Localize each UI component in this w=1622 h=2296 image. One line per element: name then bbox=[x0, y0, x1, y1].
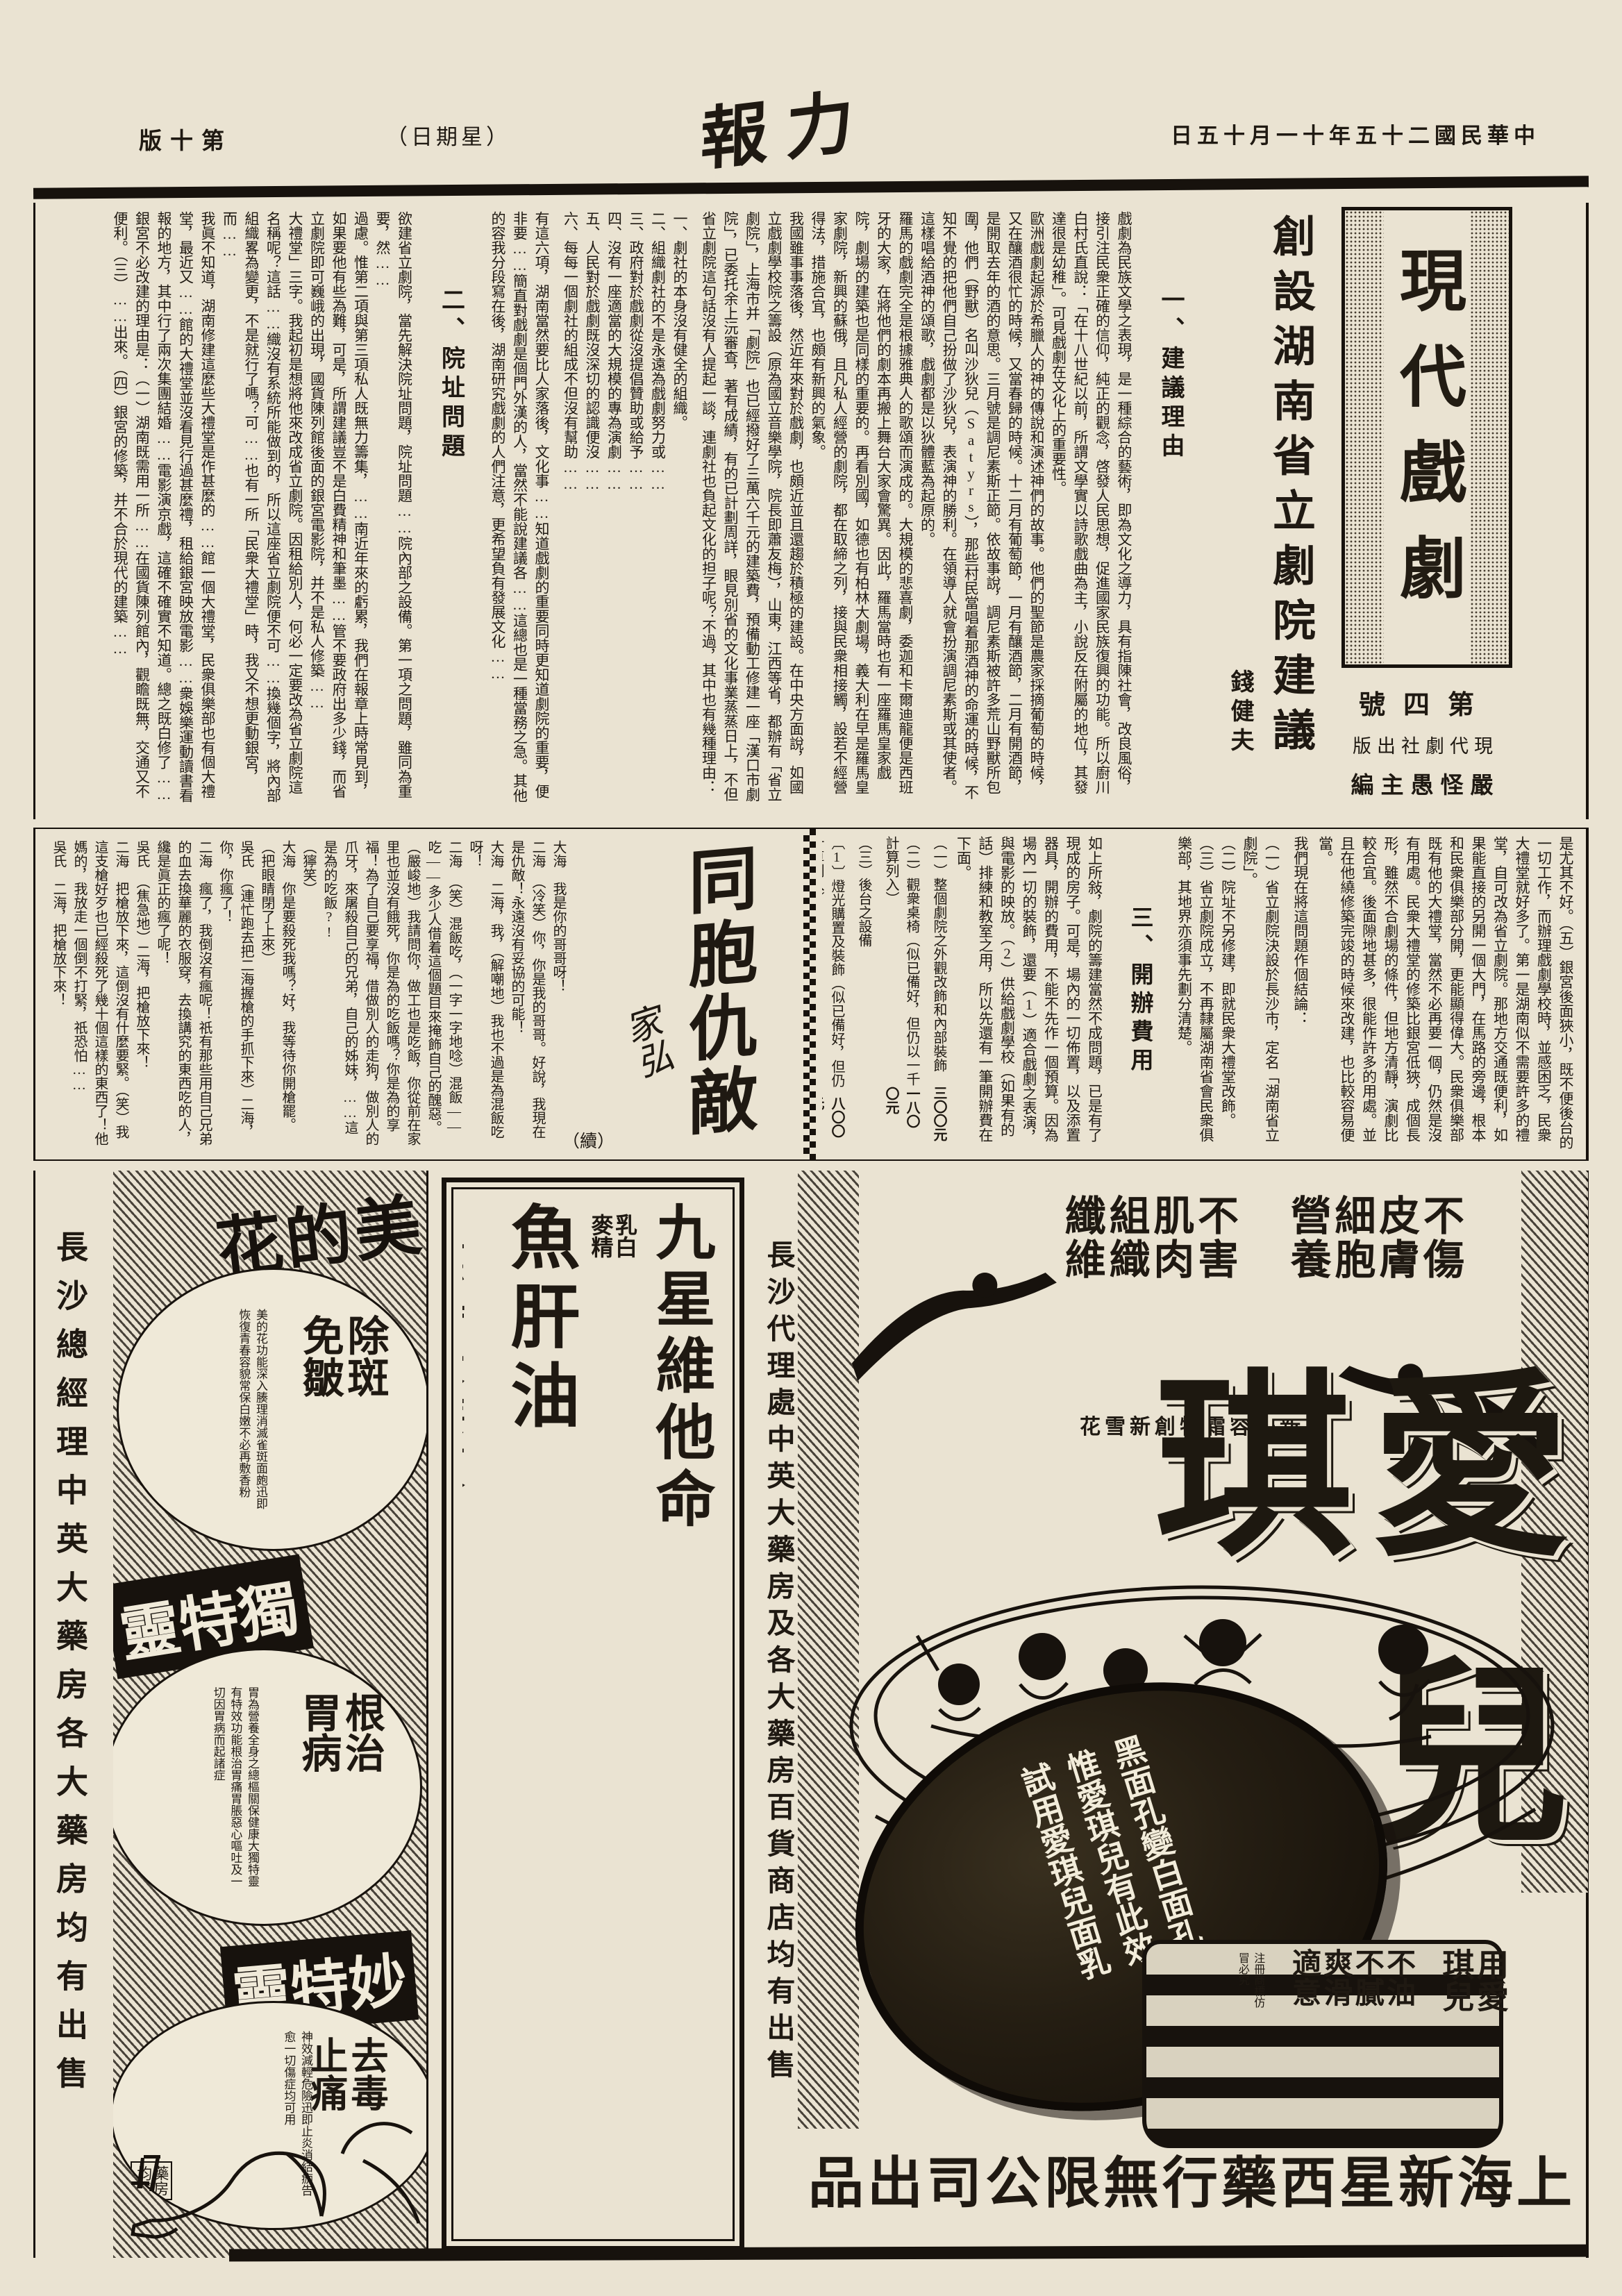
section1-closing: 有這六項，湖南當然要比人家落後，文化事……知道戲劇的重要同時更知道劇院的重要，便… bbox=[487, 211, 553, 808]
masthead-rule bbox=[33, 176, 1589, 199]
supplement-logo: 現代戲劇 bbox=[1379, 246, 1475, 629]
meidihua-artwork: 美的花 除斑免皺 美的花功能深入腠理消滅雀斑面皰迅即恢復青春容貌常保白嫩不必再敷… bbox=[113, 1171, 426, 2258]
budget-list: （一）整個劇院之外觀改飾和內部裝飾 三〇〇元 （二）觀衆桌椅（似已備好，但仍以一… bbox=[822, 836, 949, 1153]
section2-heading: 二、院址問題 bbox=[433, 287, 469, 808]
aiqier-small-print: 注冊商標仿冒必究 bbox=[1234, 1952, 1265, 2015]
section1-reasons: 一、劇社的本身沒有健全的組織。 二、組織劇社的不是永遠為戲劇努力或…… 三、政府… bbox=[559, 211, 690, 808]
article-author: 錢健夫 bbox=[1223, 669, 1257, 801]
ad-jiuxing: 九星維他命 乳白麥精 魚肝油 應時大廉價 照碼八折買二送一 各大藥房同時舉行 長… bbox=[435, 1171, 751, 2258]
newspaper-page: 中華民國二十五年十一月十五日 力報 （星期日） 第十版 現代戲劇 第四號 現代劇… bbox=[0, 0, 1622, 2296]
aiqier-company-footer: 上海新星西藥行無限公司出品 bbox=[777, 2138, 1575, 2219]
top-article-section: 現代戲劇 第四號 現代劇社出版 嚴怪愚主編 創設湖南省立劇院建議 錢健夫 一、建… bbox=[33, 203, 1589, 819]
fiction-title: 同胞仇敵 bbox=[667, 840, 767, 1157]
budget-item: （二）觀衆桌椅（似已備好，但仍以一千計算列入） 一八〇〇元 bbox=[880, 836, 922, 1141]
middle-band: 是尤其不好。（五）銀宮後面狹小，既不便後台的一切工作，而辦理戲劇學校時，並感困乏… bbox=[33, 828, 1589, 1161]
budget-item-label: 〔1〕燈光購置及裝飾（似已備好，但仍計算列入） bbox=[822, 836, 847, 1096]
budget-item-amount: 一八〇〇元 bbox=[880, 1087, 922, 1141]
jiuxing-product-column: 九星維他命 乳白麥精 魚肝油 bbox=[488, 1201, 724, 2227]
section1-heading: 一、建議理由 bbox=[1153, 287, 1188, 808]
aiqier-usage-claims: 不油不膩爽滑適意 bbox=[1289, 1948, 1414, 2015]
jiuxing-product-name2: 魚肝油 bbox=[488, 1201, 589, 2227]
aiqier-usage: 用愛琪兒 bbox=[1439, 1948, 1507, 2020]
budget-item: （一）整個劇院之外觀改飾和內部裝飾 三〇〇元 bbox=[928, 836, 949, 1141]
dutelin-detail: 胃為營養全身之總樞關保健康大獨特靈有特效功能根治胃痛胃脹惡心嘔吐及一切因胃病而起… bbox=[122, 1686, 260, 1895]
budget-item-label: （三）後台之設備 bbox=[853, 836, 874, 947]
jiuxing-promo: 應時大廉價 bbox=[462, 1240, 470, 2227]
supplement-editor: 嚴怪愚主編 bbox=[1311, 766, 1540, 800]
section2-continuation: 是尤其不好。（五）銀宮後面狹小，既不便後台的一切工作，而辦理戲劇學校時，並感困乏… bbox=[1314, 836, 1576, 1153]
aiqier-agent-line: 長沙代理處中英大藥房及各大藥房百貨商店均有出售 bbox=[758, 1240, 799, 2163]
reclining-woman-foot-nails-illustration bbox=[113, 2077, 426, 2258]
dutelin-claim: 根治胃病 bbox=[296, 1692, 383, 1784]
article-headline: 創設湖南省立劇院建議 bbox=[1258, 214, 1321, 803]
budget-section: 是尤其不好。（五）銀宮後面狹小，既不便後台的一切工作，而辦理戲劇學校時，並感困乏… bbox=[822, 836, 1576, 1153]
checkered-divider bbox=[803, 829, 816, 1159]
masthead-date: 中華民國二十五年十一月十五日 bbox=[1171, 118, 1540, 149]
advertisement-band: 長沙總經理中英大藥房各大藥房均有出售 美的花 除斑免皺 美的花功能深入腠理消滅雀… bbox=[33, 1171, 1589, 2258]
fiction-text: 大海 我是你的哥哥呀！ 二海 （冷笑）你，你是我的哥哥。好說，我現在是仇敵！永遠… bbox=[44, 840, 569, 1146]
meidihua-circle: 除斑免皺 美的花功能深入腠理消滅雀斑面皰迅即恢復青春容貌常保白嫩不必再敷香粉 bbox=[117, 1268, 426, 1551]
masthead-title: 力報 bbox=[700, 64, 873, 185]
conclusion-items: （一）省立劇院決設於長沙市，定名「湖南省立劇院」。 （二）院址不另修建，即就民衆… bbox=[1173, 836, 1282, 1153]
budget-item: 〔1〕燈光購置及裝飾（似已備好，但仍計算列入） 八〇〇元 bbox=[822, 836, 847, 1141]
ad-aiqier: 長沙代理處中英大藥房及各大藥房百貨商店均有出售 不傷皮膚細胞營養 不害肌肉組織纖… bbox=[753, 1171, 1588, 2258]
budget-item-amount: 八〇〇元 bbox=[822, 1096, 847, 1141]
section2-paragraphs: 欲建省立劇院，當先解決院址問題，院址問題……院內部之設備。第一項之問題，雖同為重… bbox=[109, 211, 415, 808]
aiqier-slogan-2: 不害肌肉組織纖維 bbox=[1059, 1194, 1236, 1287]
section1-paragraphs: 戲劇為民族文學之表現，是一種綜合的藝術，即為文化之導力，具有指陳社會，改良風俗，… bbox=[697, 211, 1135, 808]
masthead-edition: 第十版 bbox=[139, 122, 233, 156]
aiqier-usage-block: 用愛琪兒 不油不膩爽滑適意 注冊商標仿冒必究 bbox=[1234, 1948, 1507, 2020]
supplement-logo-box: 現代戲劇 bbox=[1341, 207, 1512, 668]
budget-item-label: （一）整個劇院之外觀改飾和內部裝飾 bbox=[928, 836, 949, 1072]
aiqier-slogan-1: 不傷皮膚細胞營養 bbox=[1285, 1194, 1462, 1287]
section3-heading: 三、開辦費用 bbox=[1122, 905, 1157, 1153]
supplement-publisher: 現代劇社出版 bbox=[1311, 731, 1540, 758]
supplement-issue: 第四號 bbox=[1311, 683, 1540, 721]
masthead-weekday: （星期日） bbox=[386, 119, 511, 151]
jiuxing-subname: 乳白麥精 bbox=[589, 1214, 637, 1266]
supplement-imprint: 第四號 現代劇社出版 嚴怪愚主編 bbox=[1311, 683, 1540, 800]
article-body: 一、建議理由 戲劇為民族文學之表現，是一種綜合的藝術，即為文化之導力，具有指陳社… bbox=[45, 211, 1206, 808]
budget-item-label: （二）觀衆桌椅（似已備好，但仍以一千計算列入） bbox=[880, 836, 922, 1087]
meidihua-agent-line: 長沙總經理中英大藥房各大藥房均有出售 bbox=[47, 1230, 92, 2216]
jiuxing-content: 九星維他命 乳白麥精 魚肝油 應時大廉價 照碼八折買二送一 各大藥房同時舉行 長… bbox=[462, 1201, 724, 2227]
conclusion-intro: 我們現在將這問題作個結論： bbox=[1289, 836, 1312, 1153]
meidihua-claim: 除斑免皺 bbox=[296, 1314, 387, 1409]
fiction-section: 同胞仇敵 家弘 （續） 大海 我是你的哥哥呀！ 二海 （冷笑）你，你是我的哥哥。… bbox=[40, 832, 792, 1155]
budget-item: （三）後台之設備 bbox=[853, 836, 874, 1141]
fiction-continuation-mark: （續） bbox=[562, 1128, 614, 1153]
section3-intro: 如上所敍，劇院的籌建當然不成問題，已是有了現成的房子。可是，場內的一切佈置，以及… bbox=[952, 836, 1105, 1153]
ad-meidihua: 長沙總經理中英大藥房各大藥房均有出售 美的花 除斑免皺 美的花功能深入腠理消滅雀… bbox=[35, 1171, 428, 2258]
jiuxing-product-name: 九星維他命 bbox=[637, 1201, 724, 2227]
meidihua-detail: 美的花功能深入腠理消滅雀斑面皰迅即恢復青春容貌常保白嫩不必再敷香粉 bbox=[137, 1309, 269, 1517]
dutelin-circle: 根治胃病 胃為營養全身之總樞關保健康大獨特靈有特效功能根治胃痛胃脹惡心嘔吐及一切… bbox=[113, 1648, 422, 1926]
budget-item-amount: 三〇〇元 bbox=[928, 1086, 949, 1141]
jiuxing-promo-column: 應時大廉價 照碼八折買二送一 bbox=[462, 1201, 470, 2227]
